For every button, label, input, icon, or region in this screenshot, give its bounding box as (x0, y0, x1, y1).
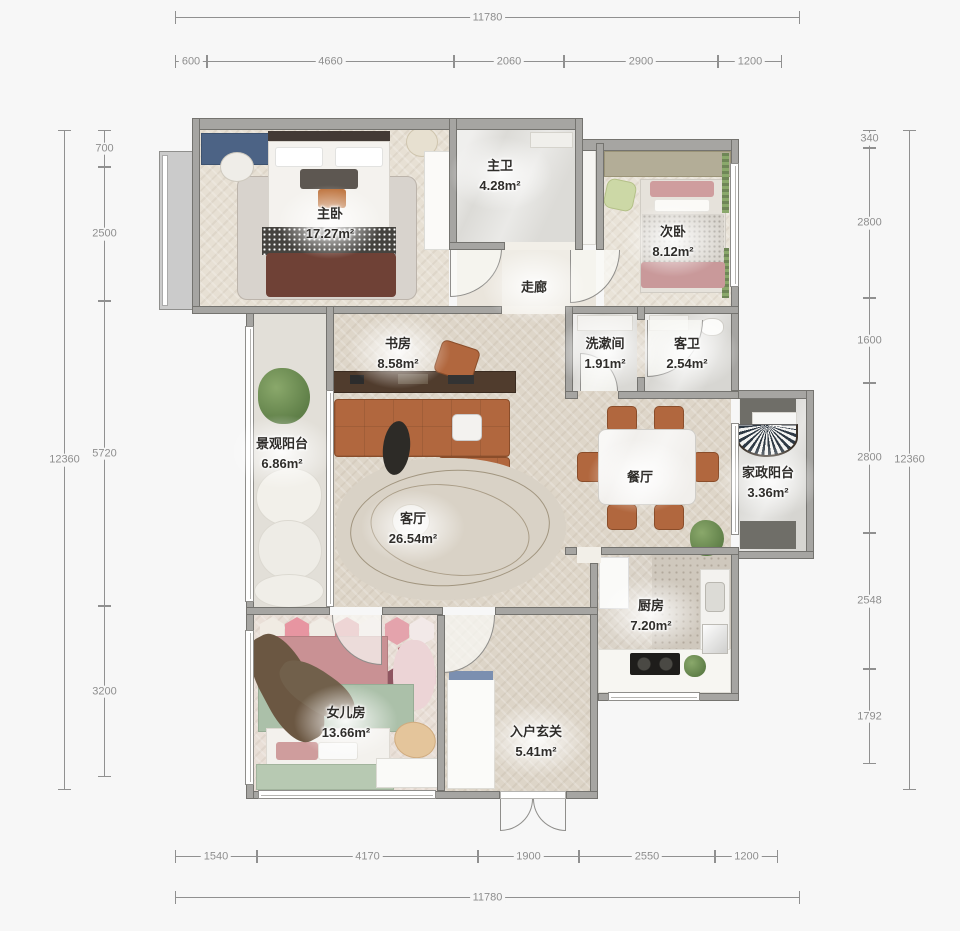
wall (596, 143, 604, 250)
dim-left-seg: 700 (98, 130, 111, 167)
wall (565, 306, 739, 314)
kids-desk (376, 758, 438, 788)
door-mat (449, 671, 493, 680)
dim-left-seg: 5720 (98, 301, 111, 606)
dim-label: 2550 (632, 850, 662, 863)
room-label-daughter-room: 女儿房13.66m² (322, 702, 370, 740)
dim-bottom-seg: 1200 (715, 850, 778, 863)
room-name: 景观阳台 (256, 433, 308, 452)
room-label-washroom: 洗漱间1.91m² (584, 333, 625, 371)
dim-label: 2800 (854, 452, 884, 465)
wall (437, 615, 445, 791)
wall (192, 118, 583, 130)
room-name: 客厅 (389, 508, 437, 527)
dim-top-seg: 1200 (718, 55, 782, 68)
sink (705, 582, 725, 612)
window (258, 790, 436, 799)
wall (192, 118, 200, 314)
dim-label: 1200 (731, 850, 761, 863)
dim-right-seg: 1600 (863, 298, 876, 383)
room-label-living-room: 客厅26.54m² (389, 508, 437, 546)
room-label-study: 书房8.58m² (377, 333, 418, 371)
doorway-threshold (577, 547, 601, 563)
dim-label: 2900 (626, 55, 656, 68)
wardrobe (424, 151, 450, 250)
wall (565, 391, 578, 399)
room-label-kitchen: 厨房7.20m² (630, 595, 671, 633)
dim-bottom-seg: 2550 (579, 850, 715, 863)
room-name: 入户玄关 (510, 721, 562, 740)
room-label-master-bedroom: 主卧17.27m² (306, 203, 354, 241)
dim-label: 4660 (315, 55, 345, 68)
room-area: 8.58m² (377, 356, 418, 371)
wardrobe (604, 151, 731, 177)
entry-threshold (500, 791, 566, 799)
room-area: 2.54m² (666, 356, 707, 371)
wall (246, 607, 330, 615)
dim-right-seg: 1792 (863, 669, 876, 764)
pillow (275, 147, 323, 167)
dim-label: 1600 (854, 334, 884, 347)
dim-label: 11780 (470, 11, 506, 24)
room-area: 7.20m² (630, 618, 671, 633)
room-name: 洗漱间 (584, 333, 625, 352)
dim-top-total: 11780 (175, 11, 800, 24)
laundry-mat (740, 521, 796, 549)
wall (731, 551, 739, 701)
dim-label: 700 (92, 142, 116, 155)
dim-right-total: 12360 (903, 130, 916, 790)
room-area: 1.91m² (584, 356, 625, 371)
balcony-pouf (254, 574, 324, 608)
window (162, 155, 168, 306)
dim-bottom-total: 11780 (175, 891, 800, 904)
dim-label: 4170 (352, 850, 382, 863)
dim-bottom-seg: 1900 (478, 850, 579, 863)
desk-item (448, 375, 474, 384)
dim-label: 5720 (89, 447, 119, 460)
dim-bottom-seg: 1540 (175, 850, 257, 863)
pillow (650, 181, 714, 197)
room-name: 家政阳台 (742, 462, 794, 481)
balcony-pouf (258, 520, 322, 580)
dim-top-seg: 2900 (564, 55, 718, 68)
sofa (334, 399, 510, 457)
dim-top-seg: 2060 (454, 55, 564, 68)
room-area: 17.27m² (306, 226, 354, 241)
bed-blanket (266, 253, 396, 297)
window (608, 692, 700, 701)
room-area: 4.28m² (479, 178, 520, 193)
room-name: 女儿房 (322, 702, 370, 721)
bedroom-stool (220, 152, 254, 182)
dim-right-seg: 2548 (863, 533, 876, 669)
room-name: 厨房 (630, 595, 671, 614)
dim-label: 2548 (854, 595, 884, 608)
dim-label: 1540 (201, 850, 231, 863)
dim-left-total: 12360 (58, 130, 71, 790)
room-area: 8.12m² (652, 244, 693, 259)
dim-label: 340 (857, 133, 881, 146)
window (245, 630, 254, 785)
room-area: 6.86m² (256, 456, 308, 471)
room-label-second-bedroom: 次卧8.12m² (652, 221, 693, 259)
dim-label: 3200 (89, 685, 119, 698)
dim-label: 2060 (494, 55, 524, 68)
window (730, 163, 739, 287)
dim-label: 12360 (46, 454, 83, 467)
dim-right-seg: 2800 (863, 383, 876, 533)
wall (601, 547, 739, 555)
wall (326, 306, 334, 394)
floorplan-page: 11780 600 4660 2060 2900 1200 1540 4170 … (0, 0, 960, 931)
dim-label: 1200 (735, 55, 765, 68)
room-name: 次卧 (652, 221, 693, 240)
room-name: 书房 (377, 333, 418, 352)
entry-door-leaf (500, 799, 533, 831)
room-area: 5.41m² (510, 744, 562, 759)
wall (731, 390, 814, 399)
wall (731, 551, 814, 559)
dim-label: 12360 (891, 454, 928, 467)
entry-door-leaf (533, 799, 566, 831)
room-name: 主卫 (479, 155, 520, 174)
wall (495, 607, 598, 615)
dim-label: 2500 (89, 228, 119, 241)
room-label-view-balcony: 景观阳台6.86m² (256, 433, 308, 471)
dim-top-seg: 4660 (207, 55, 454, 68)
room-area: 13.66m² (322, 725, 370, 740)
room-label-laundry-balcony: 家政阳台3.36m² (742, 462, 794, 500)
dim-right-seg: 2800 (863, 148, 876, 298)
room-name: 主卧 (306, 203, 354, 222)
wall (618, 391, 739, 399)
wall (192, 306, 502, 314)
room-name: 客卫 (666, 333, 707, 352)
dim-right-seg: 340 (863, 130, 876, 148)
dim-left-seg: 2500 (98, 167, 111, 301)
room-label-guest-bath: 客卫2.54m² (666, 333, 707, 371)
wall (565, 547, 577, 555)
wall (566, 791, 598, 799)
wall (382, 607, 443, 615)
potted-plant (684, 655, 706, 677)
room-name: 走廊 (521, 277, 547, 296)
room-label-dining-room: 餐厅 (627, 467, 653, 486)
dim-bottom-seg: 4170 (257, 850, 478, 863)
room-area: 3.36m² (742, 485, 794, 500)
dishwasher (702, 624, 728, 654)
room-label-master-bath: 主卫4.28m² (479, 155, 520, 193)
bed-bench (256, 764, 394, 790)
wall (590, 563, 598, 799)
dim-label: 2800 (854, 217, 884, 230)
dim-left-seg: 3200 (98, 606, 111, 777)
dim-label: 1900 (513, 850, 543, 863)
dim-label: 600 (179, 55, 203, 68)
room-label-corridor: 走廊 (521, 277, 547, 296)
dim-label: 1792 (854, 710, 884, 723)
side-table (452, 414, 482, 441)
room-label-entry-foyer: 入户玄关5.41m² (510, 721, 562, 759)
dim-label: 11780 (470, 891, 506, 904)
room-name: 餐厅 (627, 467, 653, 486)
room-area: 26.54m² (389, 531, 437, 546)
pillow (335, 147, 383, 167)
stove (630, 653, 680, 675)
wall (575, 118, 583, 250)
dim-top-seg: 600 (175, 55, 207, 68)
